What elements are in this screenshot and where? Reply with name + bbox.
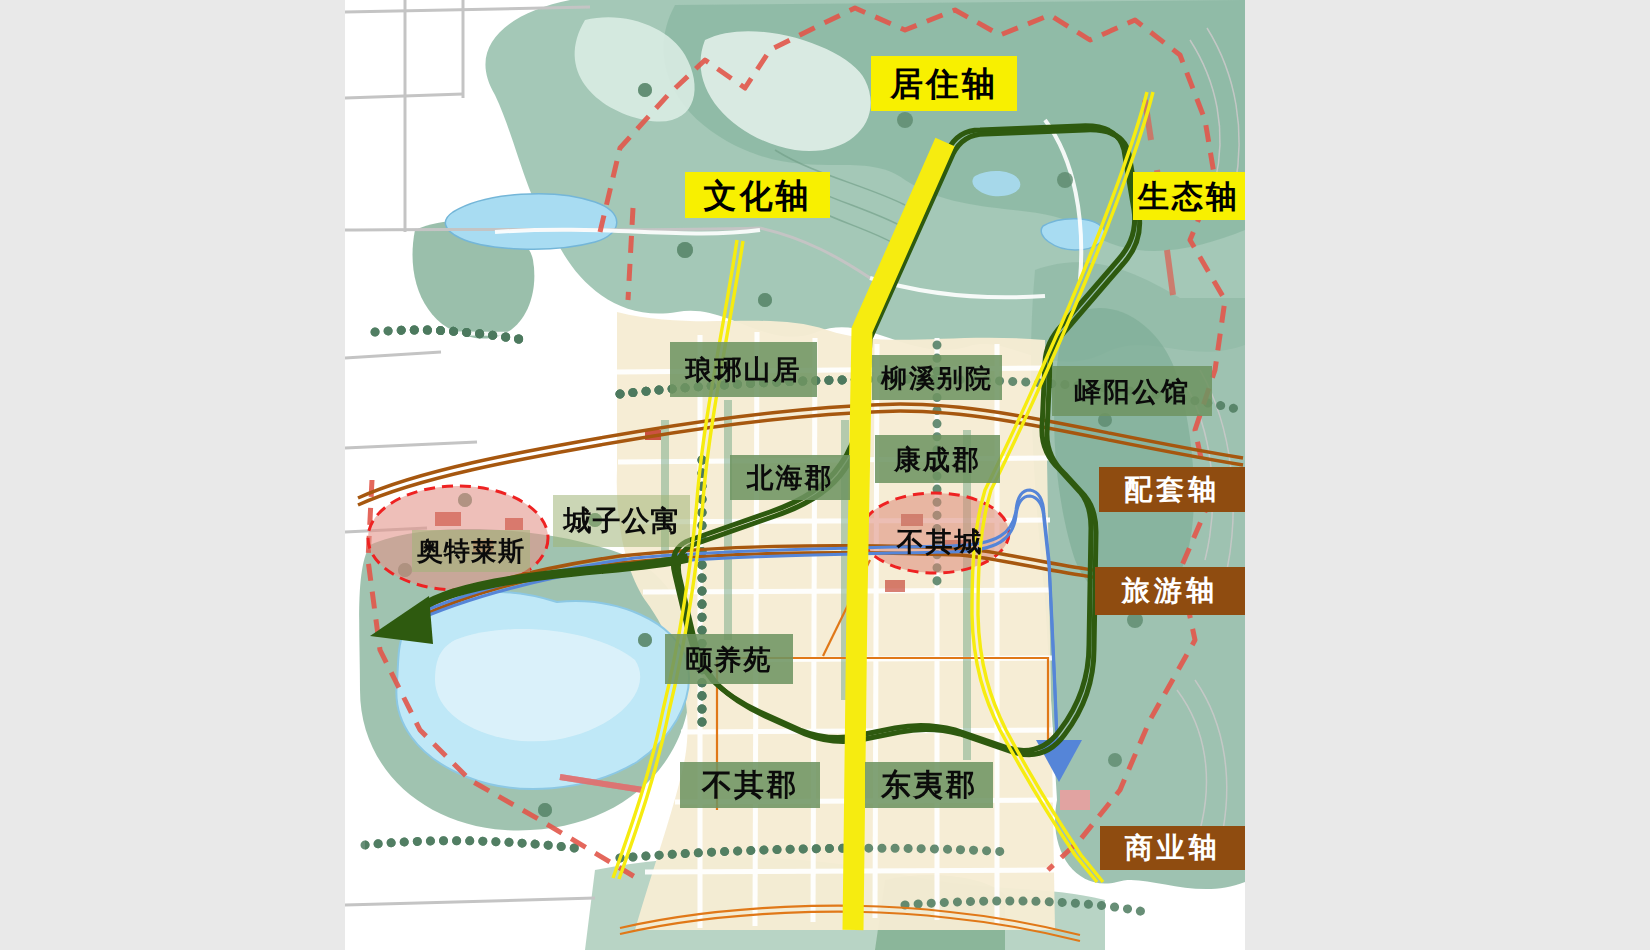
tourism-axis-text: 旅游轴 (1122, 577, 1218, 605)
kangcheng-text: 康成郡 (894, 446, 981, 473)
buqi-city-text: 不其城 (897, 528, 984, 555)
label-yiyang-garden: 颐养苑 (665, 634, 793, 684)
label-tourism-axis: 旅游轴 (1095, 567, 1245, 615)
dongyi-text: 东夷郡 (881, 770, 977, 800)
label-supporting-axis: 配套轴 (1099, 467, 1245, 512)
residential-axis-text: 居住轴 (890, 67, 998, 100)
ecological-axis-text: 生态轴 (1138, 181, 1240, 212)
label-cultural-axis: 文化轴 (685, 172, 830, 218)
yiyang-garden-text: 颐养苑 (686, 646, 773, 673)
outlets-text: 奥特莱斯 (417, 538, 525, 564)
label-buqi-city: 不其城 (880, 522, 1000, 560)
label-dongyi-county: 东夷郡 (865, 762, 993, 808)
master-plan-map: 居住轴 文化轴 生态轴 琅琊山居 柳溪别院 峄阳公馆 北海郡 康成郡 城子公寓 … (345, 0, 1245, 950)
label-chengzi-apartments: 城子公寓 (553, 495, 690, 547)
supporting-axis-text: 配套轴 (1124, 476, 1220, 504)
label-kangcheng-county: 康成郡 (875, 435, 1000, 483)
screenshot-stage: 居住轴 文化轴 生态轴 琅琊山居 柳溪别院 峄阳公馆 北海郡 康成郡 城子公寓 … (0, 0, 1650, 950)
label-outlets: 奥特莱斯 (412, 530, 530, 572)
buqi-county-text: 不其郡 (702, 770, 798, 800)
label-buqi-county: 不其郡 (680, 762, 820, 808)
label-liuxi-courtyard: 柳溪别院 (872, 355, 1002, 400)
beihai-text: 北海郡 (747, 464, 834, 491)
langya-text: 琅琊山居 (686, 356, 802, 383)
label-beihai-county: 北海郡 (730, 455, 850, 500)
label-ecological-axis: 生态轴 (1133, 172, 1245, 220)
cultural-axis-text: 文化轴 (704, 179, 812, 212)
label-yiyang-mansion: 峄阳公馆 (1052, 366, 1212, 416)
chengzi-text: 城子公寓 (564, 507, 680, 535)
label-residential-axis: 居住轴 (871, 56, 1017, 111)
yiyang-mansion-text: 峄阳公馆 (1074, 378, 1190, 405)
commercial-axis-text: 商业轴 (1125, 834, 1221, 862)
liuxi-text: 柳溪别院 (881, 365, 993, 391)
label-commercial-axis: 商业轴 (1100, 826, 1245, 870)
label-langya-mountain-residence: 琅琊山居 (670, 342, 817, 397)
